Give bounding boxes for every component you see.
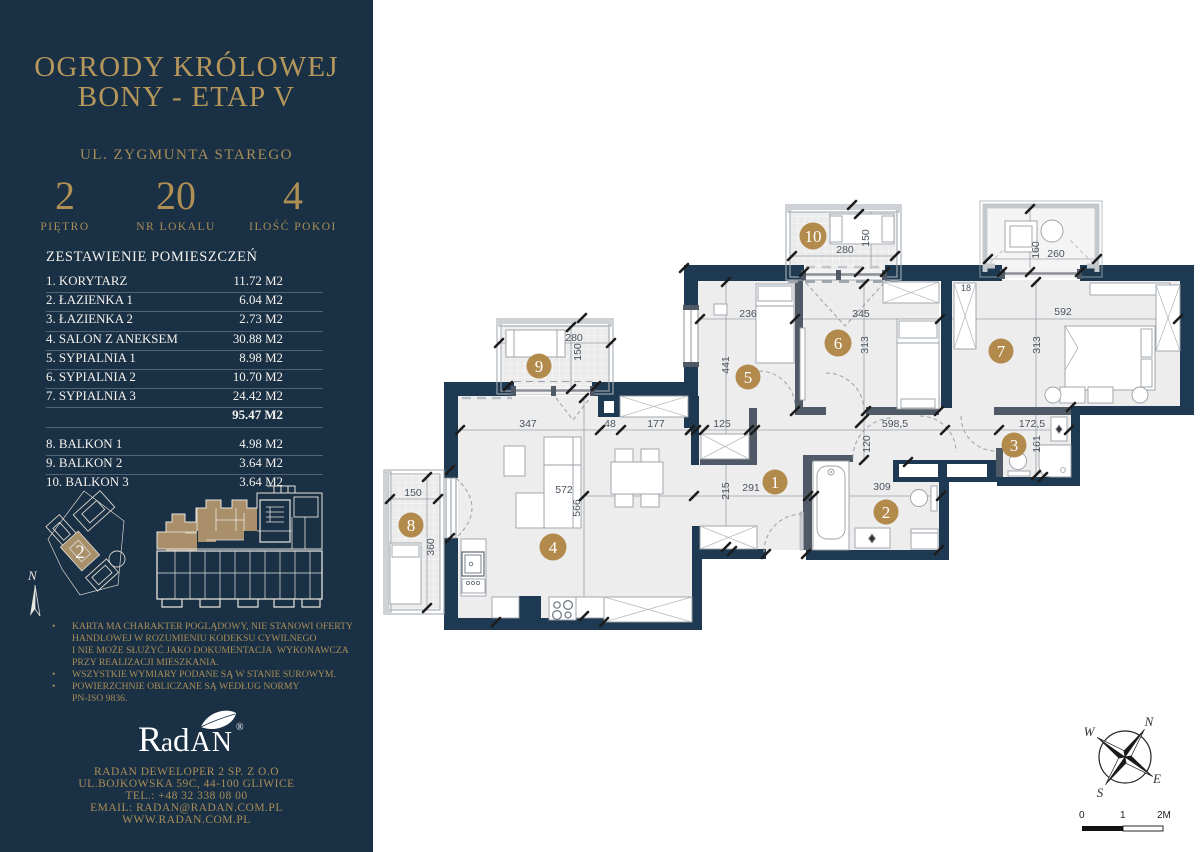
svg-text:0: 0 [1079,810,1085,821]
svg-text:236: 236 [739,308,757,320]
svg-text:125: 125 [713,418,731,430]
svg-text:18: 18 [961,283,971,293]
svg-text:150: 150 [404,487,422,499]
svg-text:120: 120 [861,435,873,453]
svg-text:441: 441 [720,356,732,374]
svg-text:347: 347 [519,418,537,430]
svg-text:2: 2 [882,503,891,522]
svg-text:W: W [1084,724,1096,739]
svg-text:S: S [1097,785,1104,800]
svg-text:313: 313 [1031,336,1043,354]
svg-text:313: 313 [859,336,871,354]
svg-text:566: 566 [571,499,583,517]
svg-text:160: 160 [1030,241,1042,259]
svg-text:150: 150 [860,229,872,247]
svg-text:1: 1 [1120,810,1126,821]
svg-text:172,5: 172,5 [1019,418,1045,430]
svg-text:598,5: 598,5 [882,418,908,430]
svg-text:360: 360 [425,538,437,556]
svg-text:280: 280 [836,244,854,256]
svg-text:592: 592 [1054,306,1072,318]
svg-text:5: 5 [744,368,753,387]
svg-text:48: 48 [604,418,616,430]
svg-text:161: 161 [1031,435,1043,453]
svg-text:4: 4 [549,538,558,557]
svg-text:2M: 2M [1157,810,1171,821]
svg-text:N: N [1144,714,1155,729]
svg-text:6: 6 [834,334,843,353]
svg-text:1: 1 [771,473,780,492]
svg-text:345: 345 [852,308,870,320]
svg-text:8: 8 [407,516,416,535]
svg-text:9: 9 [535,357,544,376]
svg-text:280: 280 [565,332,583,344]
svg-text:215: 215 [720,482,732,500]
svg-text:7: 7 [997,342,1006,361]
svg-text:10: 10 [805,227,822,246]
svg-text:150: 150 [572,343,584,361]
svg-text:291: 291 [742,482,760,494]
svg-text:309: 309 [873,481,891,493]
svg-text:572: 572 [555,484,573,496]
svg-text:260: 260 [1047,248,1065,260]
svg-text:177: 177 [647,418,665,430]
svg-text:3: 3 [1010,436,1019,455]
svg-text:E: E [1152,771,1161,786]
